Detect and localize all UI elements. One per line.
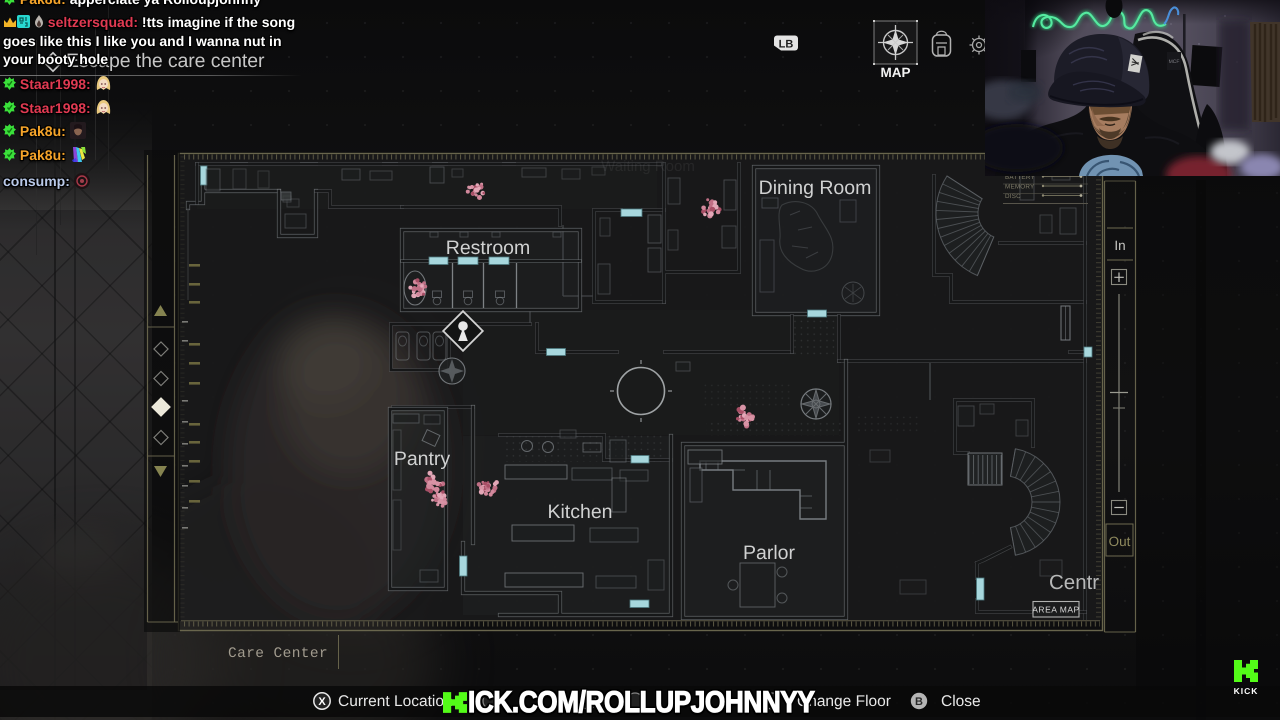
svg-text:Waiting Room: Waiting Room (601, 158, 695, 175)
svg-text:Out: Out (1109, 534, 1131, 549)
svg-text:Pantry: Pantry (394, 448, 451, 470)
svg-text:AREA MAP: AREA MAP (1032, 605, 1079, 615)
svg-text:MCF: MCF (1169, 59, 1180, 65)
svg-text:KICK: KICK (1234, 686, 1259, 696)
svg-text:LB: LB (779, 39, 794, 51)
svg-text:MEMORY: MEMORY (1005, 184, 1035, 191)
svg-text:Parlor: Parlor (743, 542, 796, 564)
svg-text:MAP: MAP (881, 65, 911, 80)
svg-text:In: In (1114, 238, 1125, 253)
svg-text:Centr: Centr (1049, 571, 1099, 594)
svg-text:Kitchen: Kitchen (547, 501, 612, 523)
svg-text:Dining Room: Dining Room (759, 177, 872, 199)
svg-text:Restroom: Restroom (446, 237, 531, 259)
svg-text:X: X (318, 696, 326, 708)
svg-text:Care Center: Care Center (228, 646, 328, 662)
svg-text:DISC: DISC (1005, 193, 1021, 200)
